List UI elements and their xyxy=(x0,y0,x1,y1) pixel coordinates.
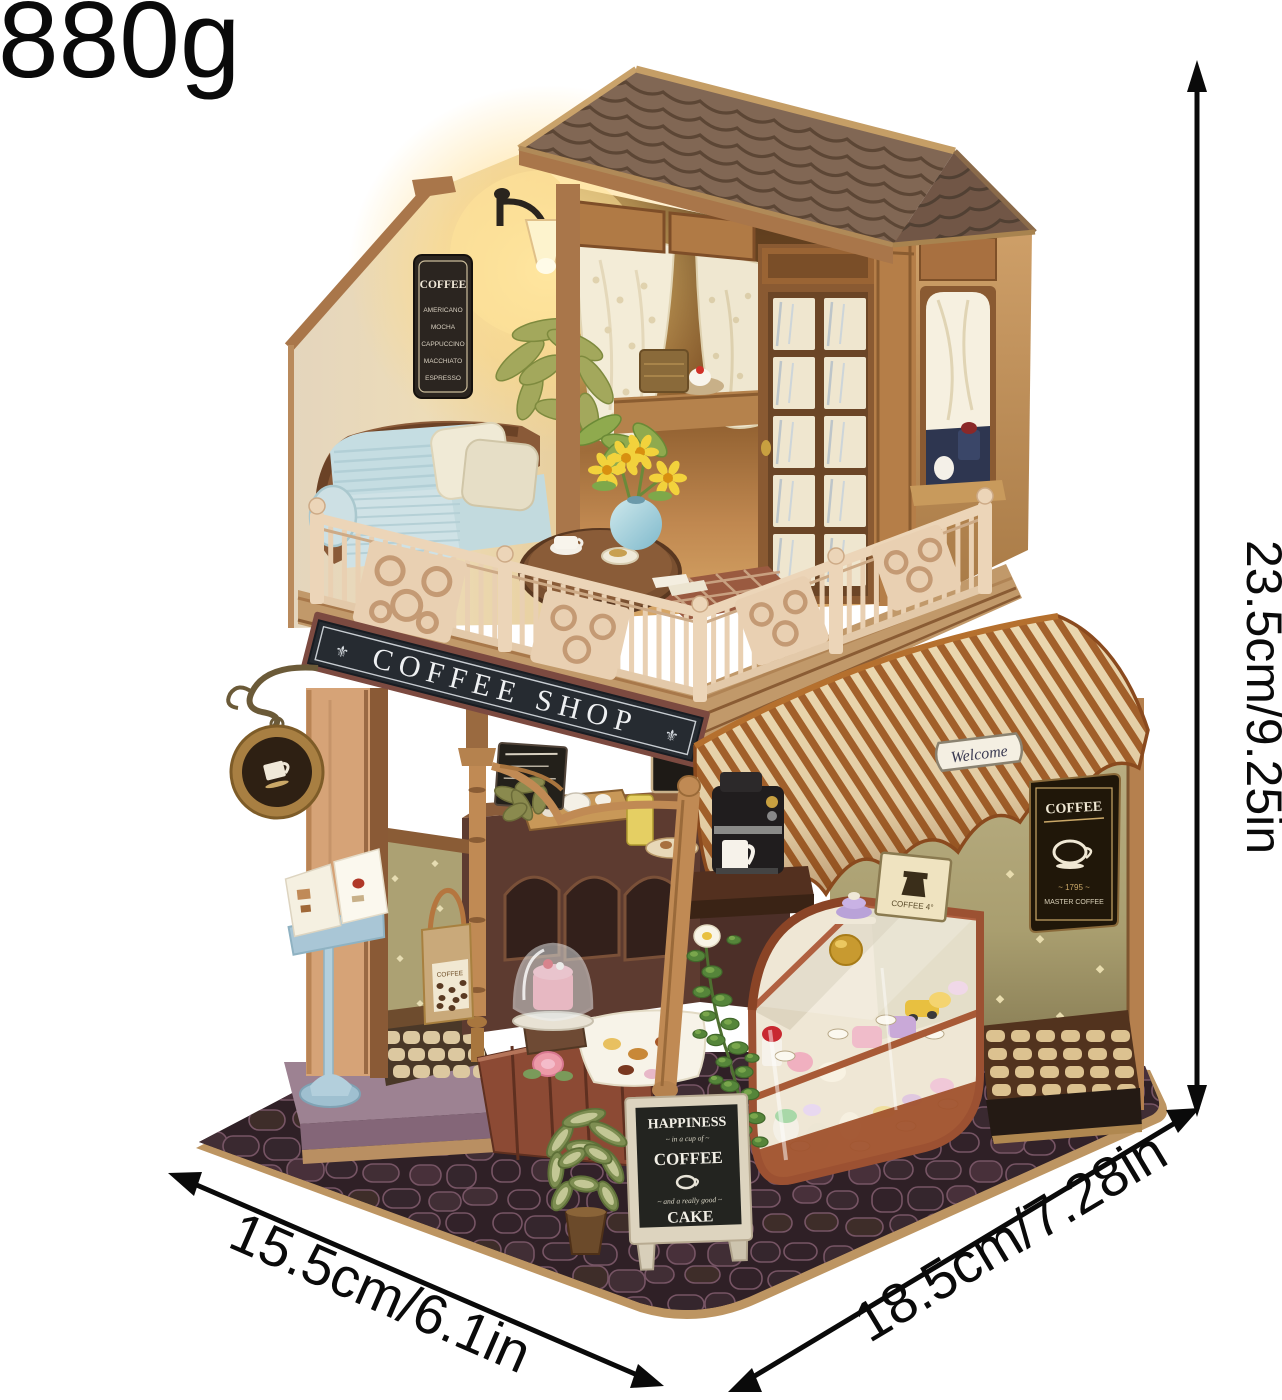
svg-text:CAPPUCCINO: CAPPUCCINO xyxy=(421,341,464,348)
svg-text:~ 1795 ~: ~ 1795 ~ xyxy=(1058,883,1090,892)
svg-text:~ in a cup of ~: ~ in a cup of ~ xyxy=(666,1133,710,1144)
svg-text:COFFEE: COFFEE xyxy=(420,279,467,291)
svg-text:HAPPINESS: HAPPINESS xyxy=(648,1115,727,1133)
svg-text:MOCHA: MOCHA xyxy=(431,324,456,331)
svg-text:ESPRESSO: ESPRESSO xyxy=(425,375,461,382)
svg-text:COFFEE: COFFEE xyxy=(1045,800,1102,818)
svg-text:CAKE: CAKE xyxy=(667,1208,714,1227)
svg-text:MASTER COFFEE: MASTER COFFEE xyxy=(1044,899,1104,906)
svg-text:23.5cm/9.25in: 23.5cm/9.25in xyxy=(1236,540,1282,854)
svg-text:880g: 880g xyxy=(0,0,240,101)
svg-text:COFFEE: COFFEE xyxy=(653,1148,723,1169)
svg-text:AMERICANO: AMERICANO xyxy=(423,307,462,314)
svg-text:MACCHIATO: MACCHIATO xyxy=(424,358,462,365)
